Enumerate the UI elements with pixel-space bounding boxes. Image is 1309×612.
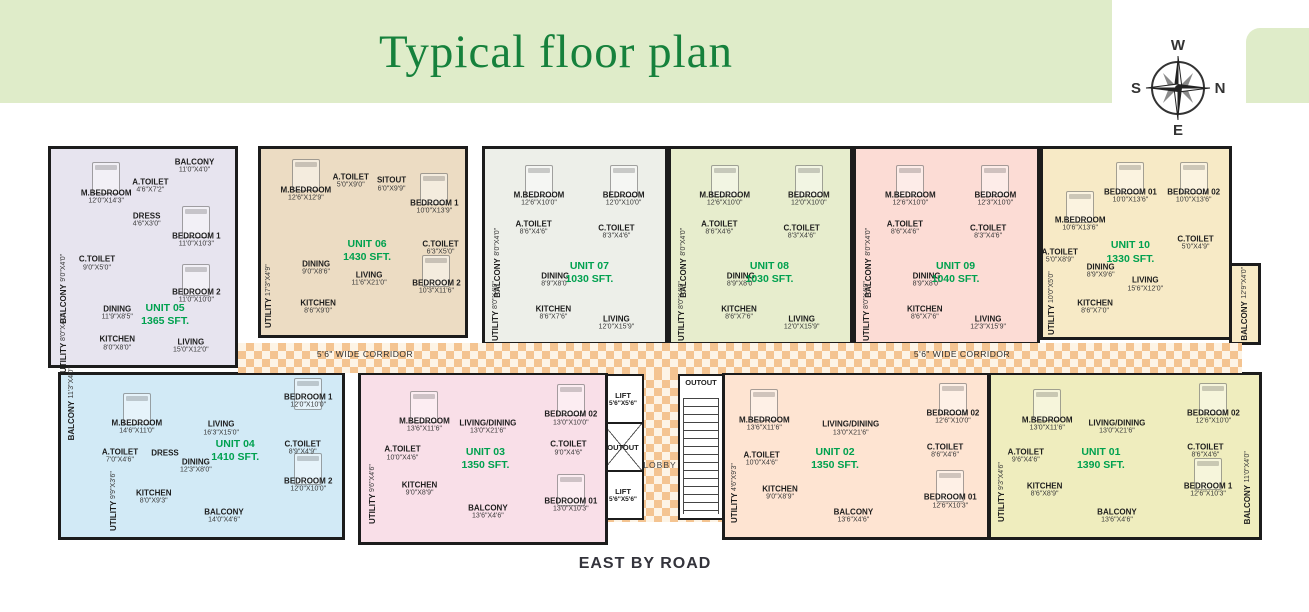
room-name: C.TOILET [970,223,1006,232]
unit-number: UNIT 08 [750,259,789,271]
room-name: DINING [180,457,212,466]
room-label: KITCHEN9'0"X8'9" [402,480,438,497]
room-label: DRESS4'6"X3'0" [133,212,161,229]
page-title: Typical floor plan [0,0,1112,103]
room-dimension: 8'3"X4'6" [784,233,820,241]
room-name: BALCONY [1097,507,1137,516]
unit-block-04: BALCONY11'3"X4'0"M.BEDROOM14'6"X11'0"LIV… [58,372,345,540]
unit-area: 1350 SFT. [811,459,859,471]
compass-rose: W N E S [1128,36,1228,136]
core-block: LIFT 5'6"X5'6" OUTOUT LIFT 5'6"X5'6" LOB… [598,372,728,522]
room-dimension: 8'0"X9'3" [136,497,172,505]
room-dimension: 8'6"X4'6" [887,229,923,237]
room-label: BALCONY11'0"X4'0" [175,158,215,175]
lift-dim: 5'6"X5'6" [609,400,637,408]
room-dimension: 5'0"X9'0" [333,181,369,189]
unit-block-03: M.BEDROOM13'6"X11'6"LIVING/DINING13'0"X2… [358,372,608,545]
room-name: BALCONY [1243,485,1252,525]
room-dimension: 11'3"X4'0" [68,368,75,401]
lift-label: LIFT [615,391,631,400]
room-label: KITCHEN8'6"X7'0" [1077,298,1113,315]
room-label: LIVING12'0"X15'9" [599,314,635,331]
room-dimension: 8'0"X4'0" [864,228,871,258]
room-name: C.TOILET [784,223,820,232]
room-name: C.TOILET [598,223,634,232]
room-dimension: 11'0"X10'3" [172,240,220,248]
room-label: BEDROOM 0110'0"X13'6" [1104,187,1157,204]
unit-block-06: M.BEDROOM12'6"X12'9"A.TOILET5'0"X9'0"SIT… [258,146,468,338]
room-dimension: 12'0"X10'0" [603,200,645,208]
room-name: SITOUT [377,176,406,185]
room-dimension: 13'0"X21'6" [1089,427,1146,435]
room-label: BALCONY12'9"X4'0" [1236,267,1254,340]
room-name: KITCHEN [1077,298,1113,307]
room-label: KITCHEN8'0"X9'3" [136,488,172,505]
room-dimension: 8'9"X4'9" [285,448,321,456]
unit-number: UNIT 10 [1111,239,1150,251]
room-name: KITCHEN [136,488,172,497]
room-dimension: 13'0"X10'0" [544,419,597,427]
room-label: KITCHEN8'6"X9'0" [300,298,336,315]
room-dimension: 8'6"X7'6" [721,314,757,322]
room-label: DRESS [151,448,179,457]
room-dimension: 11'0"X4'0" [175,167,215,175]
room-dimension: 13'0"X21'6" [822,429,879,437]
room-label: M.BEDROOM13'6"X11'6" [739,415,790,432]
room-label: BEDROOM 110'0"X13'9" [410,198,458,215]
unit-area: 1410 SFT. [211,451,259,463]
room-label: A.TOILET5'0"X8'9" [1042,248,1078,265]
room-label: UTILITY9'3"X4'6" [993,462,1011,522]
unit-area: 1330 SFT. [1106,252,1154,264]
room-name: LIVING [784,314,820,323]
unit-number: UNIT 01 [1081,446,1120,458]
room-label: KITCHEN8'6"X8'9" [1027,481,1063,498]
compass-letter-right: N [1215,80,1226,97]
corridor-label-left: 5'6" WIDE CORRIDOR [317,349,413,359]
room-label: C.TOILET8'3"X4'6" [598,223,634,240]
unit-block-10: M.BEDROOM10'6"X13'6"BEDROOM 0110'0"X13'6… [1040,146,1232,340]
lift-top: LIFT 5'6"X5'6" [604,376,642,422]
lift-label: LIFT [615,487,631,496]
room-label: LIVING12'0"X15'9" [784,314,820,331]
room-dimension: 6'0"X9'9" [377,185,406,193]
room-label: C.TOILET5'0"X4'9" [1177,234,1213,251]
room-name: C.TOILET [550,440,586,449]
room-name: BEDROOM 2 [412,278,460,287]
room-dimension: 8'6"X7'6" [907,314,943,322]
room-dimension: 10'6"X13'6" [1055,225,1106,233]
room-label: BALCONY13'6"X4'6" [834,507,874,524]
header-band-corner [1246,28,1309,103]
room-label: UTILITY8'0"X4'0" [487,281,505,341]
room-dimension: 13'0"X11'6" [1022,424,1073,432]
room-label: DINING9'0"X8'6" [302,259,330,276]
room-name: C.TOILET [285,439,321,448]
room-label: A.TOILET9'6"X4'6" [1008,447,1044,464]
duct-cell: OUTOUT [604,422,642,472]
unit-area-label: UNIT 051365 SFT. [141,302,189,328]
room-name: KITCHEN [402,480,438,489]
unit-block-01: M.BEDROOM13'0"X11'6"LIVING/DINING13'0"X2… [988,372,1262,540]
unit-number: UNIT 06 [348,238,387,250]
room-label: BEDROOM12'0"X10'0" [788,191,830,208]
room-dimension: 12'6"X10'3" [924,502,977,510]
room-name: LIVING [352,271,387,280]
room-label: C.TOILET8'3"X4'6" [970,223,1006,240]
room-label: BEDROOM 111'0"X10'3" [172,231,220,248]
room-label: DINING12'3"X8'0" [180,457,212,474]
room-name: BEDROOM 1 [172,231,220,240]
room-name: BEDROOM 01 [544,497,597,506]
room-label: C.TOILET8'9"X4'9" [285,439,321,456]
room-label: LIVING12'3"X15'9" [970,314,1006,331]
unit-area: 1030 SFT. [746,273,794,285]
room-name: KITCHEN [762,485,798,494]
room-dimension: 12'0"X15'9" [599,323,635,331]
room-dimension: 8'0"X4'0" [678,281,685,311]
room-label: LIVING15'0"X12'0" [173,337,209,354]
unit-number: UNIT 03 [466,445,505,457]
unit-area-label: UNIT 081030 SFT. [746,259,794,285]
room-name: A.TOILET [701,220,737,229]
room-dimension: 9'6"X4'6" [1008,457,1044,465]
room-dimension: 14'0"X4'6" [204,517,244,525]
room-dimension: 9'6"X4'6" [369,464,376,494]
room-name: C.TOILET [79,255,115,264]
room-dimension: 6'3"X5'0" [422,248,458,256]
room-name: A.TOILET [333,172,369,181]
room-dimension: 10'3"X11'6" [412,287,460,295]
room-label: BEDROOM12'0"X10'0" [603,191,645,208]
unit-area-label: UNIT 091040 SFT. [932,259,980,285]
room-label: C.TOILET8'6"X4'6" [1187,443,1223,460]
staircase: OUTOUT [678,374,724,520]
room-dimension: 12'6"X10'0" [926,418,979,426]
room-dimension: 9'0"X4'0" [60,255,67,285]
room-name: LIVING [203,420,239,429]
room-label: UTILITY8'0"X4'0" [673,281,691,341]
room-name: BEDROOM 01 [1104,187,1157,196]
room-dimension: 8'6"X4'6" [927,452,963,460]
room-name: UTILITY [264,298,273,328]
room-name: A.TOILET [1008,447,1044,456]
room-label: C.TOILET6'3"X5'0" [422,239,458,256]
room-name: A.TOILET [132,177,168,186]
corridor-label-right: 5'6" WIDE CORRIDOR [914,349,1010,359]
stairs-duct-label: OUTOUT [680,378,722,387]
unit-number: UNIT 02 [815,446,854,458]
room-dimension: 12'0"X10'0" [284,401,332,409]
room-name: LIVING [599,314,635,323]
room-dimension: 10'0"X13'6" [1167,197,1220,205]
unit-area-label: UNIT 031350 SFT. [462,445,510,471]
unit-number: UNIT 09 [936,259,975,271]
unit-block-09: M.BEDROOM12'6"X10'0"BEDROOM12'3"X10'0"A.… [853,146,1040,345]
room-dimension: 13'0"X10'3" [544,506,597,514]
room-name: UTILITY [862,311,871,341]
unit-area: 1365 SFT. [141,315,189,327]
unit-number: UNIT 04 [216,438,255,450]
room-name: UTILITY [491,311,500,341]
room-dimension: 12'9"X4'0" [1241,267,1248,301]
room-name: UTILITY [368,493,377,523]
room-name: BEDROOM 02 [1167,187,1220,196]
room-label: A.TOILET7'0"X4'6" [102,447,138,464]
room-dimension: 13'6"X4'6" [1097,517,1137,525]
room-dimension: 13'6"X11'6" [739,424,790,432]
room-name: M.BEDROOM [1055,216,1106,225]
unit-area-label: UNIT 041410 SFT. [211,438,259,464]
room-name: BEDROOM [603,191,645,200]
room-dimension: 12'3"X8'0" [180,466,212,474]
room-name: LIVING/DINING [459,418,516,427]
room-name: BEDROOM 1 [284,392,332,401]
room-label: BALCONY13'6"X4'6" [468,503,508,520]
room-label: C.TOILET8'3"X4'6" [784,223,820,240]
unit-area-label: UNIT 011390 SFT. [1077,446,1125,472]
room-dimension: 10'0"X5'0" [1048,271,1055,305]
room-dimension: 4'6"X9'3" [731,463,738,493]
room-label: BEDROOM 210'3"X11'6" [412,278,460,295]
room-dimension: 11'0"X4'0" [1244,452,1251,485]
room-name: BEDROOM [788,191,830,200]
room-name: A.TOILET [887,220,923,229]
room-name: BEDROOM [974,191,1016,200]
room-name: LIVING/DINING [1089,418,1146,427]
room-name: A.TOILET [384,445,420,454]
room-dimension: 8'0"X8'0" [99,344,135,352]
room-dimension: 9'0"X4'6" [550,449,586,457]
room-label: BALCONY11'0"X4'0" [1239,452,1257,525]
room-name: M.BEDROOM [281,185,332,194]
room-label: M.BEDROOM12'0"X14'3" [81,188,132,205]
room-label: BEDROOM 0112'6"X10'3" [924,493,977,510]
room-dimension: 8'0"X4'0" [679,228,686,258]
room-label: BALCONY13'6"X4'6" [1097,507,1137,524]
room-name: KITCHEN [907,304,943,313]
room-label: A.TOILET8'6"X4'6" [701,220,737,237]
room-dimension: 12'6"X10'0" [885,200,936,208]
room-name: BEDROOM 02 [926,408,979,417]
unit-block-07: M.BEDROOM12'6"X10'0"BEDROOM12'0"X10'0"A.… [482,146,668,345]
room-label: UTILITY8'0"X4'0" [858,281,876,341]
room-dimension: 5'0"X4'9" [1177,244,1213,252]
room-dimension: 10'0"X4'6" [384,454,420,462]
room-dimension: 15'6"X12'0" [1127,285,1163,293]
room-name: M.BEDROOM [112,418,163,427]
room-name: LIVING [1127,276,1163,285]
road-label: EAST BY ROAD [579,555,712,573]
lobby-label: LOBBY [643,460,676,470]
room-dimension: 8'0"X4'0" [492,281,499,311]
room-dimension: 8'0"X4'0" [863,281,870,311]
room-name: KITCHEN [1027,481,1063,490]
room-dimension: 12'6"X12'9" [281,194,332,202]
room-label: A.TOILET8'6"X4'6" [887,220,923,237]
room-name: BEDROOM 02 [544,410,597,419]
room-name: A.TOILET [744,451,780,460]
room-label: M.BEDROOM14'6"X11'0" [112,418,163,435]
room-label: BALCONY14'0"X4'6" [204,507,244,524]
room-label: BEDROOM 0212'6"X10'0" [1187,408,1240,425]
room-name: UTILITY [730,493,739,523]
room-label: M.BEDROOM12'6"X12'9" [281,185,332,202]
room-label: KITCHEN8'6"X7'6" [907,304,943,321]
room-dimension: 16'3"X15'0" [203,429,239,437]
room-name: BEDROOM 2 [284,477,332,486]
room-dimension: 12'3"X15'9" [970,323,1006,331]
room-label: M.BEDROOM13'0"X11'6" [1022,415,1073,432]
room-label: LIVING/DINING13'0"X21'6" [822,420,879,437]
room-label: LIVING11'6"X21'0" [352,271,387,288]
room-name: M.BEDROOM [1022,415,1073,424]
room-name: M.BEDROOM [81,188,132,197]
room-label: UTILITY4'6"X9'3" [726,463,744,523]
unit-number: UNIT 07 [570,259,609,271]
unit-annex-10: BALCONY12'9"X4'0" [1229,263,1261,345]
room-name: M.BEDROOM [739,415,790,424]
room-dimension: 9'9"X3'6" [110,471,117,501]
room-name: DRESS [133,212,161,221]
room-name: BEDROOM 02 [1187,408,1240,417]
room-dimension: 5'0"X8'9" [1042,257,1078,265]
room-name: M.BEDROOM [699,191,750,200]
room-dimension: 8'6"X7'0" [1077,307,1113,315]
room-label: M.BEDROOM12'6"X10'0" [699,191,750,208]
unit-area-label: UNIT 101330 SFT. [1106,239,1154,265]
room-dimension: 9'3"X4'6" [998,462,1005,492]
room-name: BEDROOM 1 [1184,481,1232,490]
room-name: KITCHEN [721,304,757,313]
room-name: M.BEDROOM [885,191,936,200]
unit-area: 1350 SFT. [462,459,510,471]
room-dimension: 9'0"X5'0" [79,264,115,272]
unit-area: 1430 SFT. [343,251,391,263]
room-label: KITCHEN8'6"X7'6" [721,304,757,321]
room-name: M.BEDROOM [514,191,565,200]
room-dimension: 13'6"X4'6" [834,517,874,525]
compass-letter-left: S [1131,80,1141,97]
duct-label: OUTOUT [607,443,639,452]
unit-block-05: M.BEDROOM12'0"X14'3"A.TOILET4'6"X7'2"BAL… [48,146,238,368]
room-label: A.TOILET5'0"X9'0" [333,172,369,189]
room-name: UTILITY [1047,305,1056,335]
room-name: UTILITY [997,491,1006,521]
room-label: BEDROOM 112'0"X10'0" [284,392,332,409]
room-dimension: 8'6"X9'0" [300,308,336,316]
room-dimension: 12'6"X10'0" [514,200,565,208]
room-dimension: 17'3"X4'9" [265,264,272,298]
room-name: BALCONY [175,158,215,167]
lift-bottom: LIFT 5'6"X5'6" [604,472,642,518]
unit-area-label: UNIT 061430 SFT. [343,238,391,264]
room-dimension: 12'3"X10'0" [974,200,1016,208]
unit-area-label: UNIT 071030 SFT. [565,259,613,285]
room-dimension: 15'0"X12'0" [173,346,209,354]
room-dimension: 12'6"X10'0" [699,200,750,208]
unit-block-08: M.BEDROOM12'6"X10'0"BEDROOM12'0"X10'0"A.… [668,146,853,345]
room-label: SITOUT6'0"X9'9" [377,176,406,193]
room-dimension: 8'6"X8'9" [1027,491,1063,499]
room-label: BEDROOM 0213'0"X10'0" [544,410,597,427]
room-dimension: 12'6"X10'0" [1187,418,1240,426]
lift-shaft: LIFT 5'6"X5'6" OUTOUT LIFT 5'6"X5'6" [602,374,644,520]
room-dimension: 8'0"X4'0" [60,313,67,343]
room-name: BEDROOM 2 [172,287,220,296]
unit-area-label: UNIT 021350 SFT. [811,446,859,472]
room-label: BEDROOM 112'6"X10'3" [1184,481,1232,498]
room-dimension: 8'3"X4'6" [970,233,1006,241]
room-label: KITCHEN9'0"X8'9" [762,485,798,502]
room-name: LIVING [173,337,209,346]
room-name: LIVING [970,314,1006,323]
room-name: BALCONY [834,507,874,516]
room-dimension: 13'0"X21'6" [459,427,516,435]
room-dimension: 8'6"X4'6" [515,229,551,237]
room-label: A.TOILET10'0"X4'6" [384,445,420,462]
room-label: M.BEDROOM12'6"X10'0" [514,191,565,208]
room-label: UTILITY9'6"X4'6" [364,464,382,524]
room-label: BALCONY11'3"X4'0" [63,368,81,441]
room-name: C.TOILET [1177,234,1213,243]
unit-area: 1030 SFT. [565,273,613,285]
room-name: C.TOILET [422,239,458,248]
room-dimension: 8'3"X4'6" [598,233,634,241]
room-label: BEDROOM 0113'0"X10'3" [544,497,597,514]
room-name: BALCONY [468,503,508,512]
room-label: LIVING/DINING13'0"X21'6" [459,418,516,435]
room-dimension: 11'9"X8'5" [102,314,133,322]
room-label: LIVING15'6"X12'0" [1127,276,1163,293]
room-label: A.TOILET4'6"X7'2" [132,177,168,194]
room-dimension: 4'6"X3'0" [133,221,161,229]
room-name: KITCHEN [99,335,135,344]
room-label: A.TOILET8'6"X4'6" [515,220,551,237]
unit-block-02: M.BEDROOM13'6"X11'6"LIVING/DINING13'0"X2… [722,372,990,540]
room-dimension: 4'6"X7'2" [132,186,168,194]
room-dimension: 14'6"X11'0" [112,427,163,435]
room-label: BEDROOM 0210'0"X13'6" [1167,187,1220,204]
room-dimension: 8'9"X9'6" [1087,272,1115,280]
room-dimension: 12'0"X15'9" [784,323,820,331]
room-dimension: 10'0"X13'6" [1104,197,1157,205]
room-dimension: 8'0"X4'0" [493,228,500,258]
room-dimension: 9'0"X8'9" [402,489,438,497]
room-label: BEDROOM 0212'6"X10'0" [926,408,979,425]
room-dimension: 9'0"X8'6" [302,269,330,277]
room-dimension: 12'0"X14'3" [81,197,132,205]
room-dimension: 12'6"X10'3" [1184,491,1232,499]
room-name: C.TOILET [1187,443,1223,452]
room-label: DINING11'9"X8'5" [102,305,133,322]
room-label: C.TOILET9'0"X4'6" [550,440,586,457]
room-name: DINING [302,259,330,268]
room-dimension: 12'0"X10'0" [284,486,332,494]
room-label: A.TOILET10'0"X4'6" [744,451,780,468]
room-label: UTILITY8'0"X4'0" [55,313,73,373]
room-label: UTILITY10'0"X5'0" [1043,271,1061,335]
room-dimension: 8'6"X7'6" [536,314,572,322]
room-label: KITCHEN8'0"X8'0" [99,335,135,352]
room-name: UTILITY [109,501,118,531]
room-name: BALCONY [204,507,244,516]
room-label: UTILITY17'3"X4'9" [260,264,278,328]
room-name: BEDROOM 01 [924,493,977,502]
room-label: M.BEDROOM10'6"X13'6" [1055,216,1106,233]
room-dimension: 11'6"X21'0" [352,280,387,288]
room-name: KITCHEN [536,304,572,313]
